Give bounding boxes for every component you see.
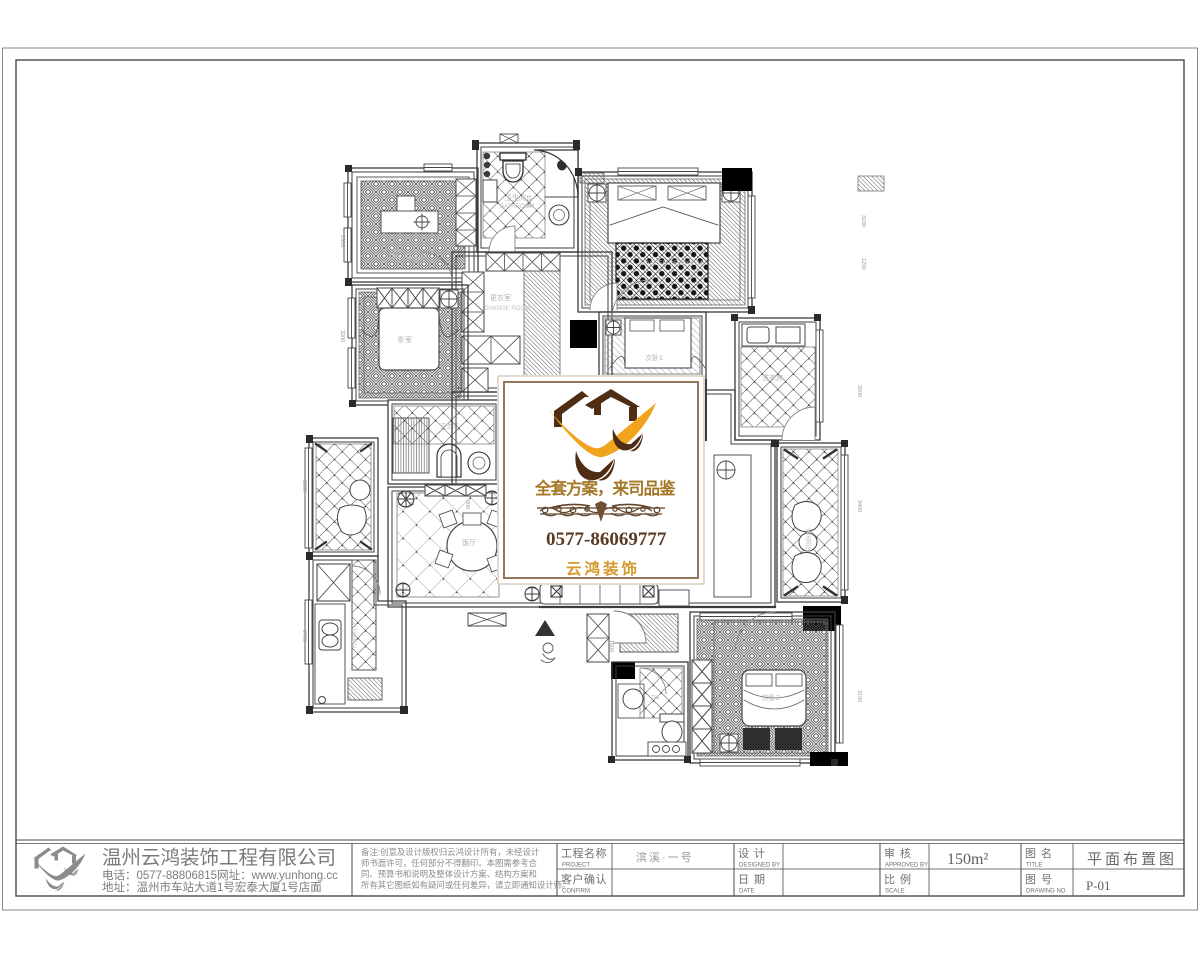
- svg-text:日期: 日期: [738, 873, 770, 886]
- svg-text:3100: 3100: [860, 215, 866, 227]
- svg-text:KITCHEN: KITCHEN: [350, 622, 356, 648]
- svg-text:客户确认: 客户确认: [561, 872, 607, 886]
- svg-text:2200: 2200: [301, 480, 307, 492]
- svg-text:全套方案，来司品鉴: 全套方案，来司品鉴: [534, 478, 676, 498]
- svg-text:图号: 图号: [1025, 873, 1057, 886]
- svg-text:2700: 2700: [301, 630, 307, 642]
- svg-text:2600: 2600: [856, 385, 862, 397]
- svg-text:卧室: 卧室: [398, 335, 412, 344]
- svg-text:更衣室: 更衣室: [490, 293, 511, 302]
- svg-text:3200: 3200: [339, 330, 345, 342]
- svg-text:师书面许可，任何部分不得翻印。本图需参考合: 师书面许可，任何部分不得翻印。本图需参考合: [361, 858, 537, 868]
- svg-text:TITLE: TITLE: [1026, 863, 1042, 869]
- svg-text:0577-86069777: 0577-86069777: [546, 529, 667, 550]
- svg-text:温州云鸿装饰工程有限公司: 温州云鸿装饰工程有限公司: [102, 847, 336, 869]
- svg-text:P-01: P-01: [1086, 878, 1111, 893]
- svg-text:洗衣房: 洗衣房: [762, 373, 783, 382]
- svg-text:PROJECT: PROJECT: [562, 863, 590, 869]
- svg-text:2900: 2900: [339, 235, 345, 247]
- svg-text:书房: 书房: [385, 244, 399, 253]
- svg-text:次卧2: 次卧2: [762, 693, 780, 702]
- svg-text:1500: 1500: [525, 195, 531, 207]
- svg-text:APPROVED BY: APPROVED BY: [885, 863, 928, 869]
- svg-text:卫4: 卫4: [650, 695, 660, 702]
- svg-text:工程名称: 工程名称: [561, 846, 607, 860]
- svg-text:休闲阳台: 休闲阳台: [804, 528, 812, 552]
- svg-text:同、预算书和说明及整体设计方案、结构方案和: 同、预算书和说明及整体设计方案、结构方案和: [361, 869, 537, 879]
- svg-text:1200: 1200: [860, 258, 866, 270]
- svg-text:DESIGNED BY: DESIGNED BY: [739, 863, 780, 869]
- svg-text:饭厅: 饭厅: [462, 538, 476, 547]
- svg-text:平面布置图: 平面布置图: [1087, 851, 1177, 868]
- svg-text:CONFIRM: CONFIRM: [562, 889, 590, 895]
- svg-text:云鸿装饰: 云鸿装饰: [566, 559, 640, 578]
- svg-text:3400: 3400: [856, 500, 862, 512]
- svg-text:图名: 图名: [1025, 846, 1057, 860]
- svg-text:MASTER BEDROOM: MASTER BEDROOM: [640, 260, 702, 267]
- svg-text:审核: 审核: [884, 846, 916, 860]
- svg-text:900: 900: [464, 500, 470, 509]
- svg-text:DATE: DATE: [739, 889, 755, 895]
- svg-text:所有其它图纸如有疑问或任何差异，请立即通知设计师。: 所有其它图纸如有疑问或任何差异，请立即通知设计师。: [361, 880, 570, 890]
- svg-text:比例: 比例: [884, 872, 916, 886]
- svg-text:滨溪·一号: 滨溪·一号: [636, 850, 694, 864]
- svg-text:卫生间: 卫生间: [440, 422, 458, 430]
- svg-text:电话：0577-88806815网址：www.yunhong: 电话：0577-88806815网址：www.yunhong.cc: [102, 868, 338, 882]
- svg-text:备注:创意及设计版权归云鸿设计所有，未经设计: 备注:创意及设计版权归云鸿设计所有，未经设计: [361, 847, 540, 857]
- svg-text:150m²: 150m²: [947, 851, 988, 868]
- svg-text:设计: 设计: [738, 847, 770, 860]
- svg-text:CHANGE ROOM: CHANGE ROOM: [484, 306, 530, 312]
- svg-text:次卧1: 次卧1: [645, 353, 663, 362]
- svg-text:卫生间: 卫生间: [505, 193, 526, 202]
- svg-text:3150: 3150: [856, 690, 862, 702]
- svg-text:DRAWING NO: DRAWING NO: [1026, 889, 1066, 895]
- svg-text:1600: 1600: [608, 640, 614, 652]
- svg-text:地址：温州市车站大道1号宏泰大厦1号店面: 地址：温州市车站大道1号宏泰大厦1号店面: [102, 880, 322, 894]
- svg-text:SCALE: SCALE: [885, 889, 905, 895]
- svg-text:SHUTING ROOM: SHUTING ROOM: [378, 255, 425, 261]
